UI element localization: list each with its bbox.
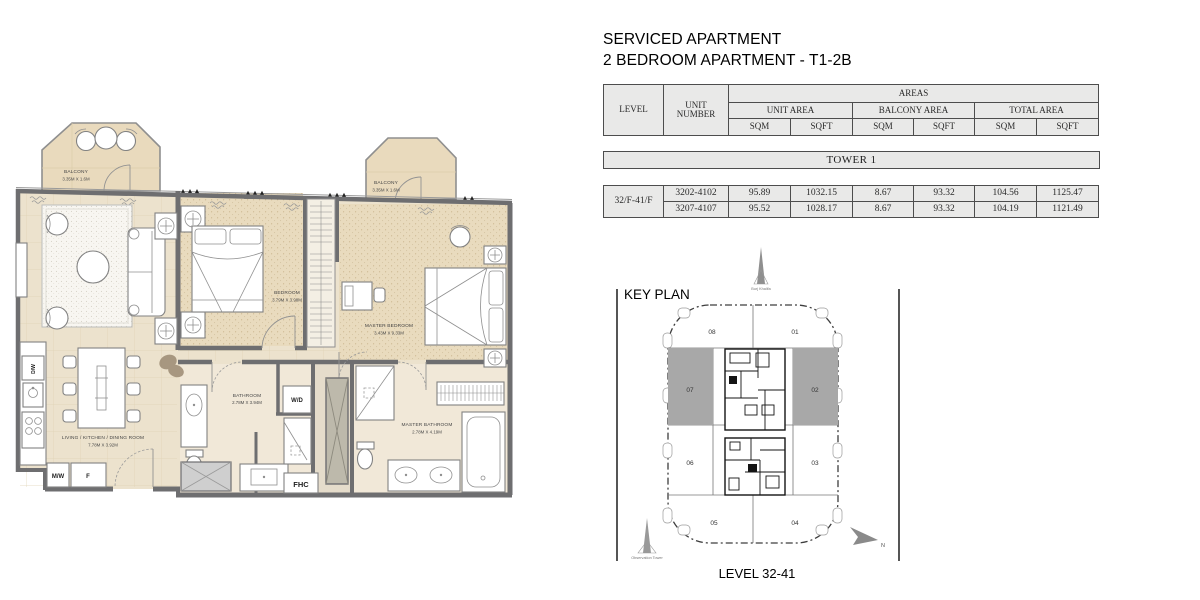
bed	[192, 226, 263, 312]
north-label: N	[881, 543, 885, 549]
bedroom-dims: 3.79M X 3.98M	[272, 298, 302, 303]
closet-rail	[437, 382, 504, 405]
landmark-bottom-label: Observation Tower	[631, 556, 663, 560]
col-unit-number: UNIT NUMBER	[664, 85, 728, 135]
north-arrow-icon: N	[850, 527, 885, 549]
balcony-sqft: 93.32	[914, 186, 974, 201]
total-sqm: 104.56	[975, 186, 1036, 201]
col-sqft: SQFT	[914, 119, 974, 135]
col-unit-area: UNIT AREA	[729, 103, 852, 118]
total-sqft: 1125.47	[1037, 186, 1098, 201]
bedroom-label: BEDROOM	[274, 290, 300, 296]
unit-07: 07	[686, 387, 694, 394]
dining-chair	[63, 356, 76, 368]
unit-05: 05	[710, 520, 718, 527]
balcony-left-dims: 3.35M X 1.6M	[62, 177, 90, 182]
dining-chair	[127, 410, 140, 422]
col-sqft: SQFT	[791, 119, 852, 135]
landmark-top-label: Burj Khalifa	[751, 287, 771, 291]
washer-dryer-label: W/D	[291, 398, 303, 404]
col-areas: AREAS	[729, 85, 1098, 102]
balcony-sqft: 93.32	[914, 202, 974, 217]
master-bathroom-dims: 2.78M X 4.19M	[412, 430, 442, 435]
total-sqft: 1121.49	[1037, 202, 1098, 217]
dining-chair	[63, 383, 76, 395]
wardrobe	[307, 199, 335, 347]
utility-shaft	[326, 378, 348, 484]
kitchen-sink	[23, 383, 43, 407]
col-total-area: TOTAL AREA	[975, 103, 1098, 118]
col-sqm: SQM	[729, 119, 790, 135]
unit-06: 06	[686, 460, 694, 467]
unit-02: 02	[811, 387, 819, 394]
nightstand	[484, 246, 506, 264]
mini-plan-lower	[725, 438, 785, 495]
nightstand	[181, 312, 205, 338]
balcony-sqm: 8.67	[853, 186, 913, 201]
building-outline: 08 01 07 02 06 03 05 04	[663, 305, 842, 543]
dining-chair	[127, 356, 140, 368]
balcony-left: BALCONY 3.35M X 1.6M	[42, 123, 160, 191]
balcony-right: BALCONY 3.35M X 1.6M	[366, 138, 456, 203]
tower-band: TOWER 1	[603, 151, 1100, 169]
keyplan-title: KEY PLAN	[624, 287, 690, 302]
unit-01: 01	[791, 329, 799, 336]
dining-table	[78, 348, 125, 428]
master-bathroom-label: MASTER BATHROOM	[402, 422, 453, 428]
nightstand	[484, 349, 506, 367]
page-title: SERVICED APARTMENT 2 BEDROOM APARTMENT -…	[603, 29, 852, 71]
title-line-1: SERVICED APARTMENT	[603, 29, 852, 50]
master-bedroom-dims: 3.43M X 9.33M	[374, 331, 404, 336]
double-vanity	[388, 460, 460, 491]
unit-sqft: 1032.15	[791, 186, 852, 201]
shower	[356, 366, 394, 420]
sofa	[128, 228, 165, 316]
unit-sqm: 95.89	[729, 186, 790, 201]
bathtub	[462, 412, 505, 492]
keyplan-caption: LEVEL 32-41	[719, 566, 796, 581]
side-table	[155, 318, 177, 344]
col-balcony-area: BALCONY AREA	[853, 103, 974, 118]
col-level: LEVEL	[604, 85, 663, 135]
unit-sqm: 95.52	[729, 202, 790, 217]
balcony-right-dims: 3.35M X 1.6M	[372, 188, 400, 193]
col-sqft: SQFT	[1037, 119, 1098, 135]
shower	[284, 418, 311, 464]
coffee-table	[77, 251, 109, 283]
fire-hose-cabinet-label: FHC	[293, 480, 309, 489]
living-label: LIVING / KITCHEN / DINING ROOM	[62, 435, 144, 441]
dining-chair	[63, 410, 76, 422]
balcony-chair	[117, 132, 136, 151]
balcony-sqm: 8.67	[853, 202, 913, 217]
fridge-label: F	[86, 474, 90, 480]
level-cell: 32/F-41/F	[604, 186, 663, 217]
col-sqm: SQM	[853, 119, 913, 135]
unit-08: 08	[708, 329, 716, 336]
landmark-burj-khalifa: Burj Khalifa	[751, 247, 771, 291]
dining-chair	[127, 383, 140, 395]
areas-table-data: 32/F-41/F 3202-4102 95.89 1032.15 8.67 9…	[603, 185, 1099, 218]
floor-plan: BALCONY 3.35M X 1.6M BALCONY 3.35M X 1.6…	[0, 0, 560, 600]
brochure-page: { "header": { "line1": "SERVICED APARTME…	[0, 0, 1200, 600]
balcony-right-label: BALCONY	[374, 180, 399, 186]
areas-table-header: LEVEL UNIT NUMBER AREAS UNIT AREA BALCON…	[603, 84, 1099, 136]
side-table	[155, 213, 177, 239]
master-bed	[425, 268, 506, 345]
dining-area	[63, 348, 140, 428]
stove	[22, 412, 44, 448]
unit-cell: 3207-4107	[664, 202, 728, 217]
microwave-label: M/W	[52, 474, 65, 480]
living-dims: 7.78M X 3.92M	[88, 443, 118, 448]
dishwasher-label: D/W	[31, 364, 37, 374]
unit-cell: 3202-4102	[664, 186, 728, 201]
bathroom-label: BATHROOM	[233, 393, 262, 399]
unit-sqft: 1028.17	[791, 202, 852, 217]
total-sqm: 104.19	[975, 202, 1036, 217]
toilet	[357, 442, 374, 469]
armchair	[46, 307, 68, 329]
col-sqm: SQM	[975, 119, 1036, 135]
tv-console	[16, 243, 27, 297]
key-plan: KEY PLAN Burj Khalifa	[600, 240, 910, 600]
landmark-observation-tower: Observation Tower	[631, 518, 663, 560]
balcony-chair	[77, 132, 96, 151]
title-line-2: 2 BEDROOM APARTMENT - T1-2B	[603, 50, 852, 71]
balcony-table	[95, 127, 117, 149]
mini-plan-upper	[725, 349, 785, 430]
bathroom-dims: 2.78M X 3.94M	[232, 400, 262, 405]
balcony-left-label: BALCONY	[64, 169, 89, 175]
armchair	[46, 213, 68, 235]
unit-04: 04	[791, 520, 799, 527]
unit-03: 03	[811, 460, 819, 467]
master-bedroom-label: MASTER BEDROOM	[365, 323, 413, 329]
